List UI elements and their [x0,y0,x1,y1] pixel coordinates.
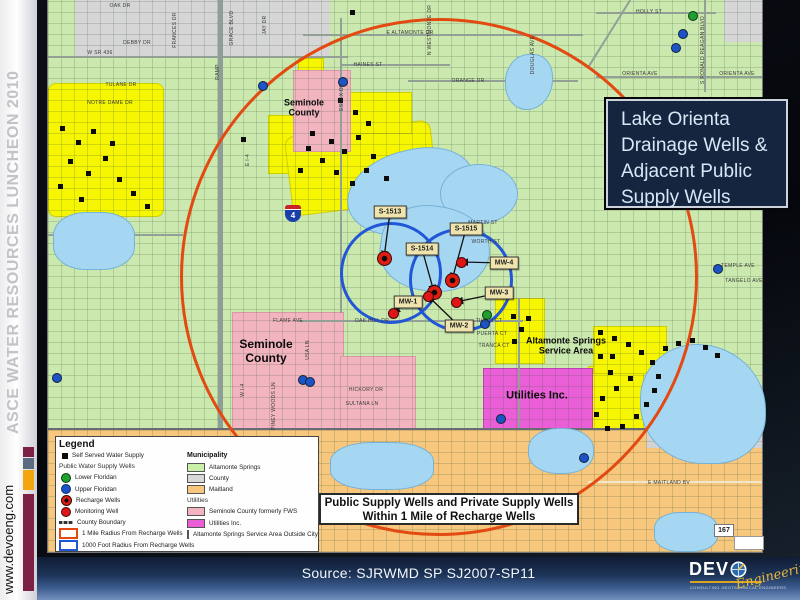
legend-wells-column: Self Served Water SupplyPublic Water Sup… [59,450,187,551]
black-square-symbol [62,453,68,459]
legend-item-label: Altamonte Springs [209,464,260,471]
legend-item: Self Served Water Supply [59,450,187,461]
legend-section-header: Public Water Supply Wells [59,461,187,472]
info-line-1: Public Supply Wells and Private Supply W… [321,496,577,510]
title-line: Drainage Wells & [621,133,786,159]
legend-item: 1 Mile Radius From Recharge Wells [59,528,187,539]
color-swatch [187,485,205,494]
recharge-symbol [61,495,72,506]
blue-circle-symbol [61,484,71,494]
color-swatch [187,519,205,528]
sidebar-color-bar [23,458,34,469]
legend: Legend Self Served Water SupplyPublic Wa… [55,436,319,552]
title-line: Supply Wells [621,185,786,211]
legend-item: Altamonte Springs [187,462,315,473]
sidebar-color-bar [23,494,34,591]
legend-item-label: County [209,475,229,482]
legend-item: Upper Floridan [59,484,187,495]
legend-title: Legend [59,439,315,450]
sidebar: ASCE WATER RESOURCES LUNCHEON 2010 www.d… [0,0,37,600]
state-road-167-shield: 167 [714,524,734,537]
sidebar-color-bar [23,470,34,490]
legend-item: Monitoring Well [59,506,187,517]
legend-municipality-column: Municipality Altamonte SpringsCountyMait… [187,450,315,551]
title-box: Lake Orienta Drainage Wells & Adjacent P… [606,99,788,208]
legend-item-label: 1 Mile Radius From Recharge Wells [82,530,183,537]
green-circle-symbol [61,473,71,483]
legend-item-label: Seminole County formerly FWS [209,508,297,515]
interstate-number: 4 [285,210,301,221]
legend-item-label: Self Served Water Supply [72,452,144,459]
road [704,0,706,92]
color-swatch [187,507,205,516]
legend-item-label: Upper Floridan [75,486,117,493]
thousand-foot-radius-circle [409,228,513,332]
legend-item: Utilities Inc. [187,517,315,528]
legend-item: Altamonte Springs Service Area Outside C… [187,529,315,540]
legend-item-label: Monitoring Well [75,508,118,515]
slide: 4 167 E ALTAMONTE DRW SR 436HAINES STORA… [0,0,800,600]
legend-item: County Boundary [59,517,187,528]
blue-outline-symbol [59,540,78,551]
red-outline-symbol [59,528,78,539]
legend-item: County [187,473,315,484]
legend-item-label: Recharge Wells [76,497,120,504]
logo-text-dev: DEV [689,560,729,578]
legend-item-label: 1000 Foot Radius From Recharge Wells [82,542,194,549]
legend-item: Seminole County formerly FWS [187,506,315,517]
color-swatch [187,474,205,483]
legend-municipality-header: Municipality [187,450,315,462]
boundary-line-symbol [59,521,73,524]
legend-item: Lower Floridan [59,472,187,483]
map-date-box [734,536,764,550]
lake [654,512,718,552]
road [596,76,762,78]
color-swatch [187,463,205,472]
legend-utilities-header: Utilities [187,495,315,506]
interstate-4-shield: 4 [285,205,301,222]
color-swatch [187,530,189,539]
source-bar: Source: SJRWMD SP SJ2007-SP11 DEV CONSUL… [37,557,800,600]
info-box: Public Supply Wells and Private Supply W… [319,493,579,525]
event-title-vertical: ASCE WATER RESOURCES LUNCHEON 2010 [5,4,23,434]
info-line-2: Within 1 Mile of Recharge Wells [321,510,577,524]
legend-item-label: Utilities Inc. [209,520,241,527]
red-circle-symbol [61,507,71,517]
legend-item-label: Maitland [209,486,233,493]
road [588,481,762,483]
legend-item-label: Altamonte Springs Service Area Outside C… [193,531,318,538]
title-line: Lake Orienta [621,107,786,133]
legend-item: Recharge Wells [59,495,187,506]
source-text: Source: SJRWMD SP SJ2007-SP11 [37,565,800,581]
lake [53,212,135,270]
legend-item: Maitland [187,484,315,495]
website-vertical: www.devoeng.com [1,442,16,594]
road [596,12,716,14]
sidebar-color-bar [23,447,34,457]
legend-item: 1000 Foot Radius From Recharge Wells [59,540,187,551]
title-line: Adjacent Public [621,159,786,185]
legend-item-label: Lower Floridan [75,474,117,481]
legend-item-label: County Boundary [77,519,126,526]
devo-logo: DEV CONSULTING GEOTECHNICAL ENGINEERS En… [689,560,799,599]
